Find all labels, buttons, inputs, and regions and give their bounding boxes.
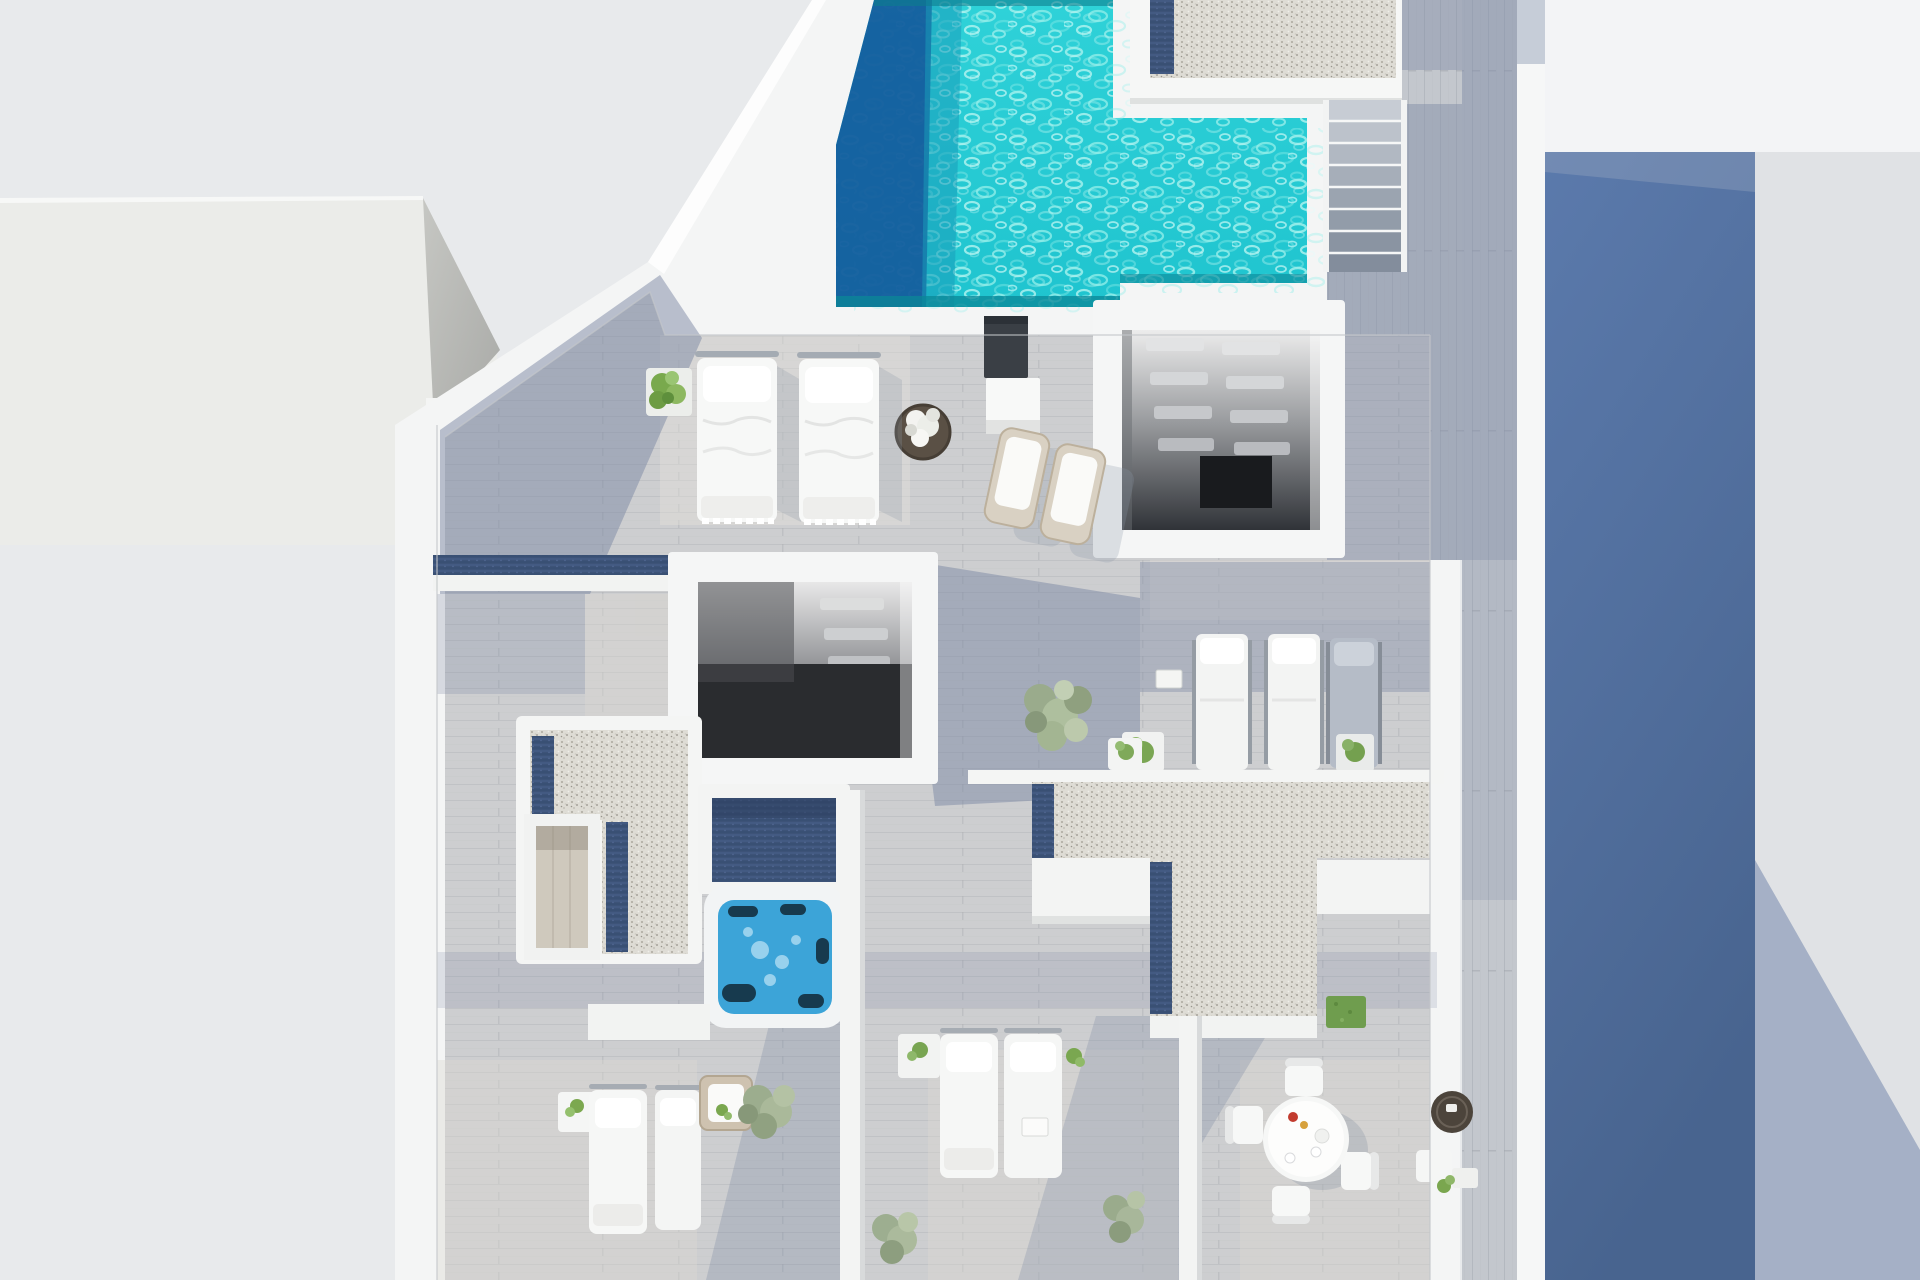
deck-tray [1156,670,1182,688]
ne-stairwell [1093,300,1345,558]
privacy-divider-1 [840,790,865,1280]
jacuzzi-south-wall [588,1004,710,1040]
gravel-roof-box [1130,0,1402,104]
privacy-divider-2 [1179,1016,1202,1280]
dining-chair [1272,1186,1310,1224]
dining-chair [1285,1058,1323,1096]
skylight-lightwell [524,814,600,960]
sunbed [695,351,779,522]
table-item-red [1288,1112,1298,1122]
hot-tub [704,886,846,1028]
pool-bush [646,368,692,416]
round-planter [896,405,950,459]
rooftop-render [0,0,1920,1280]
exterior-staircase [1323,100,1407,272]
center-stairwell [668,552,938,784]
dining-chair [1341,1152,1379,1190]
lounger [1192,634,1252,770]
lounger [1264,634,1324,770]
bay2-bench [898,1034,940,1078]
east-wall [1517,0,1545,1280]
table-item [1300,1121,1308,1129]
wicker-side-table [1431,1091,1473,1133]
grass-patch [1326,996,1366,1028]
dining-chair [1225,1106,1263,1144]
navy-parapet-band [433,555,679,591]
jacuzzi-deck [698,784,850,894]
bay1-loungers [589,1084,701,1234]
sunbed [797,352,881,523]
